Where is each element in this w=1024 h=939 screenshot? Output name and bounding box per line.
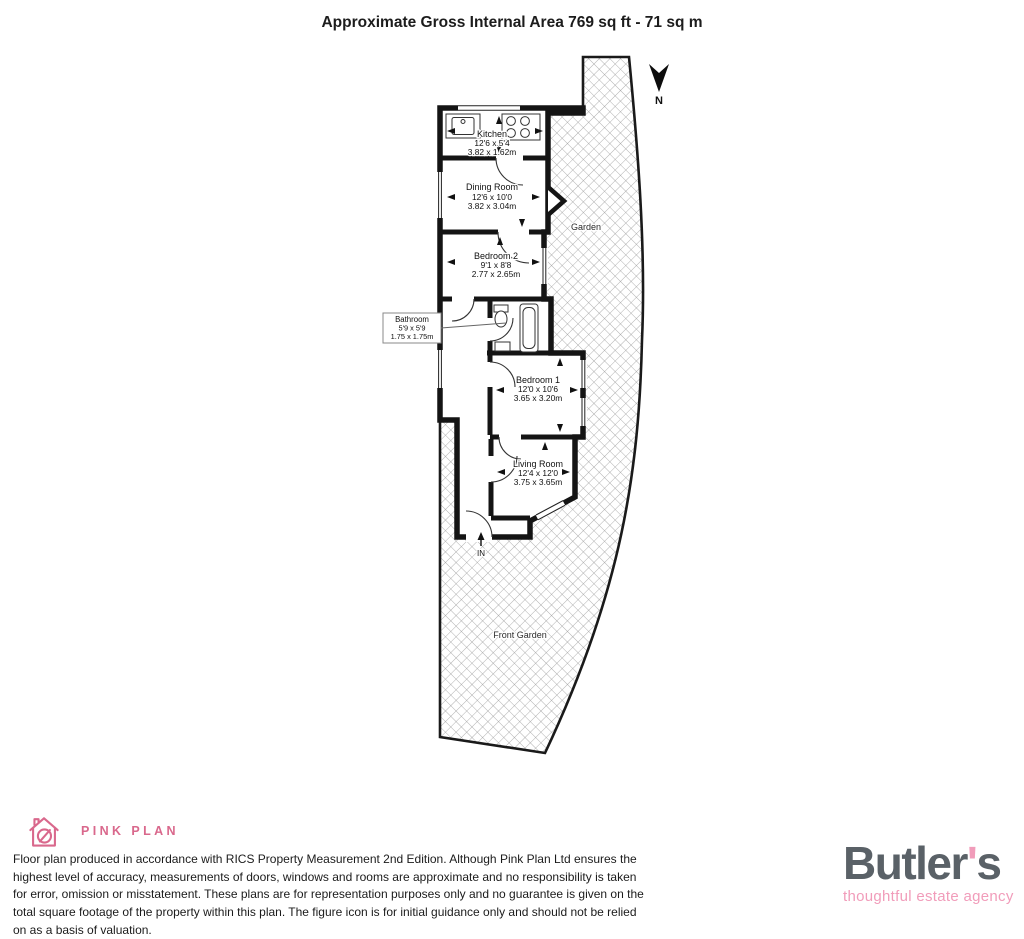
svg-text:1.75 x 1.75m: 1.75 x 1.75m	[391, 332, 434, 341]
butlers-name-post: s	[976, 837, 1000, 889]
svg-text:3.82 x 3.04m: 3.82 x 3.04m	[468, 201, 516, 211]
basin-icon	[495, 342, 510, 351]
north-arrow: N	[649, 64, 669, 107]
garden-label: Garden	[571, 222, 601, 232]
disclaimer-text: Floor plan produced in accordance with R…	[13, 851, 645, 939]
page-title: Approximate Gross Internal Area 769 sq f…	[321, 14, 702, 31]
dining-room-label: Dining Room 12'6 x 10'0 3.82 x 3.04m	[466, 182, 518, 211]
entrance-label: IN	[477, 549, 485, 558]
north-label: N	[655, 95, 663, 107]
pink-plan-brand: PINK PLAN	[24, 811, 179, 851]
bedroom1-label: Bedroom 1 12'0 x 10'6 3.65 x 3.20m	[514, 375, 562, 403]
pink-plan-logo-icon	[24, 811, 64, 851]
svg-text:3.75 x 3.65m: 3.75 x 3.65m	[514, 477, 562, 487]
svg-text:3.82 x 1.62m: 3.82 x 1.62m	[468, 147, 516, 157]
floor-plan: Approximate Gross Internal Area 769 sq f…	[0, 0, 1024, 800]
butlers-apostrophe: '	[967, 837, 976, 889]
butlers-name-pre: Butler	[843, 837, 967, 889]
butlers-wordmark: Butler's	[843, 839, 1014, 887]
butlers-brand: Butler's thoughtful estate agency	[843, 839, 1014, 905]
svg-text:Dining Room: Dining Room	[466, 182, 518, 192]
north-arrow-icon	[649, 64, 669, 92]
butlers-tagline: thoughtful estate agency	[843, 888, 1014, 905]
living-room-label: Living Room 12'4 x 12'0 3.75 x 3.65m	[513, 459, 563, 487]
pink-plan-brand-name: PINK PLAN	[81, 824, 179, 838]
svg-text:2.77 x 2.65m: 2.77 x 2.65m	[472, 269, 520, 279]
svg-text:3.65 x 3.20m: 3.65 x 3.20m	[514, 393, 562, 403]
front-garden-label: Front Garden	[493, 630, 547, 640]
